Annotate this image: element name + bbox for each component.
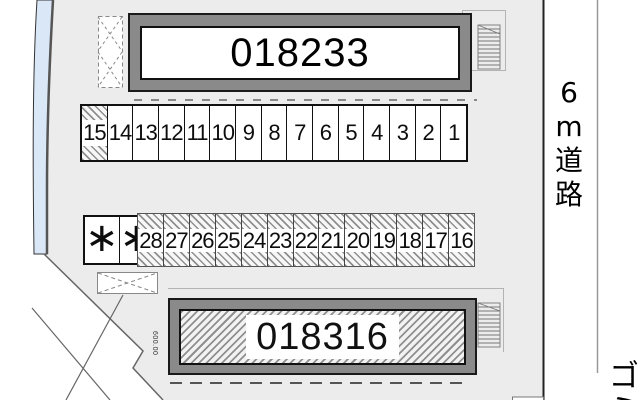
building-number: 018233 xyxy=(230,31,369,76)
parking-space-10: 10 xyxy=(209,106,235,160)
parking-space-label: 7 xyxy=(294,120,305,146)
parking-space-4: 4 xyxy=(363,106,389,160)
parking-space-label: 11 xyxy=(187,120,208,146)
parking-space-16: 16 xyxy=(448,214,474,266)
parking-space-23: 23 xyxy=(267,214,293,266)
parking-space-label: 23 xyxy=(268,229,293,252)
parking-space-11: 11 xyxy=(184,106,210,160)
parking-space-label: 28 xyxy=(138,229,163,252)
building-018316: 018316 xyxy=(168,298,477,375)
parking-space-label: 3 xyxy=(397,120,408,146)
parking-space-label: 16 xyxy=(449,229,474,252)
parking-space-2: 2 xyxy=(415,106,441,160)
parking-space-6: 6 xyxy=(312,106,338,160)
parking-space-label: 19 xyxy=(371,229,396,252)
building-018233: 018233 xyxy=(128,13,472,92)
garbage-area-label: ゴミ xyxy=(606,360,640,400)
parking-space-label: 15 xyxy=(82,120,106,146)
vertical-label-char: ゴ xyxy=(606,360,640,394)
parking-row-special: ∗∗ xyxy=(83,215,137,265)
parking-space-label: 18 xyxy=(397,229,422,252)
parking-space-special: ∗ xyxy=(85,217,119,263)
road-width-label: 6m道路 xyxy=(549,76,589,212)
vertical-label-char: ミ xyxy=(606,394,640,400)
parking-space-5: 5 xyxy=(338,106,364,160)
parking-space-label: 24 xyxy=(242,229,267,252)
vertical-label-char: 路 xyxy=(549,178,589,212)
parking-space-label: 14 xyxy=(109,120,131,146)
parking-space-13: 13 xyxy=(132,106,158,160)
parking-space-label: 22 xyxy=(294,229,319,252)
parking-space-label: 26 xyxy=(190,229,215,252)
parking-space-20: 20 xyxy=(344,214,370,266)
parking-space-label: 21 xyxy=(319,229,344,252)
parking-space-label: 27 xyxy=(164,229,189,252)
vertical-label-char: 道 xyxy=(549,144,589,178)
parking-row-lower: 28272625242322212019181716 xyxy=(137,213,475,267)
parking-space-label: 6 xyxy=(320,120,331,146)
parking-row-upper: 151413121110987654321 xyxy=(80,104,468,162)
parking-space-22: 22 xyxy=(293,214,319,266)
parking-space-label: 12 xyxy=(160,120,182,146)
parking-space-label: 1 xyxy=(448,120,459,146)
parking-space-1: 1 xyxy=(440,106,466,160)
parking-space-26: 26 xyxy=(189,214,215,266)
parking-space-14: 14 xyxy=(107,106,133,160)
parking-space-label: ∗ xyxy=(85,218,119,258)
parking-space-7: 7 xyxy=(286,106,312,160)
building-018233-face: 018233 xyxy=(140,26,460,80)
parking-space-label: 8 xyxy=(268,120,279,146)
parking-space-15: 15 xyxy=(82,106,107,160)
bike-area-box xyxy=(99,17,123,88)
parking-space-label: 5 xyxy=(345,120,356,146)
parking-space-label: 20 xyxy=(345,229,370,252)
lot-line-1 xyxy=(32,308,110,400)
parking-space-label: 9 xyxy=(243,120,254,146)
parking-space-label: 25 xyxy=(216,229,241,252)
parking-space-24: 24 xyxy=(241,214,267,266)
parking-space-19: 19 xyxy=(370,214,396,266)
parking-space-label: 4 xyxy=(371,120,382,146)
lot-line-2 xyxy=(66,295,123,400)
parking-space-label: 13 xyxy=(134,120,156,146)
parking-space-21: 21 xyxy=(318,214,344,266)
parking-space-12: 12 xyxy=(158,106,184,160)
parking-space-9: 9 xyxy=(235,106,261,160)
parking-space-3: 3 xyxy=(389,106,415,160)
dimension-note: 600.00 xyxy=(151,331,158,355)
parking-space-18: 18 xyxy=(396,214,422,266)
building-018316-face: 018316 xyxy=(179,309,466,365)
building-number: 018316 xyxy=(246,315,399,359)
vertical-label-char: m xyxy=(549,110,589,144)
parking-space-28: 28 xyxy=(138,214,163,266)
parking-space-17: 17 xyxy=(422,214,448,266)
parking-space-label: 10 xyxy=(211,120,233,146)
parking-site-map: 018233 151413121110987654321 ∗∗ 28272625… xyxy=(0,0,640,400)
parking-space-8: 8 xyxy=(261,106,287,160)
parking-space-label: 2 xyxy=(422,120,433,146)
vertical-label-char: 6 xyxy=(549,76,589,110)
parking-space-label: 17 xyxy=(423,229,448,252)
parking-space-27: 27 xyxy=(163,214,189,266)
parking-space-25: 25 xyxy=(215,214,241,266)
